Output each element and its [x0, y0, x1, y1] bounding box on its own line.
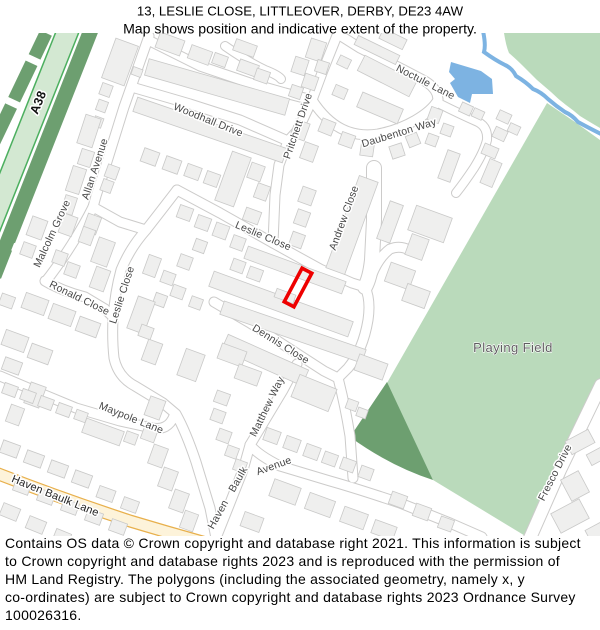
svg-text:13, LESLIE CLOSE, LITTLEOVER,: 13, LESLIE CLOSE, LITTLEOVER, DERBY, DE2…: [137, 4, 464, 19]
svg-text:to Crown copyright and databas: to Crown copyright and database rights 2…: [5, 553, 560, 569]
svg-text:Playing Field: Playing Field: [473, 340, 553, 355]
svg-text:Map shows position and indicat: Map shows position and indicative extent…: [123, 21, 477, 37]
svg-text:co-ordinates) are subject to C: co-ordinates) are subject to Crown copyr…: [5, 589, 576, 605]
svg-text:100026316.: 100026316.: [5, 607, 81, 623]
svg-text:Contains OS data © Crown copyr: Contains OS data © Crown copyright and d…: [5, 535, 581, 551]
svg-text:HM Land Registry. The polygons: HM Land Registry. The polygons (includin…: [5, 571, 525, 587]
